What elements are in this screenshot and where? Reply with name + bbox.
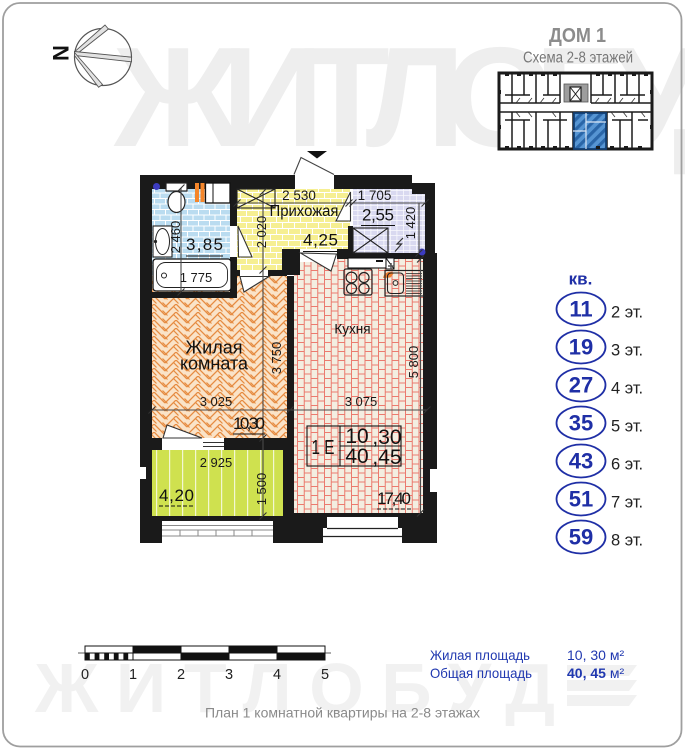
- svg-text:3 075: 3 075: [345, 394, 378, 409]
- svg-text:Прихожая: Прихожая: [270, 203, 339, 220]
- svg-text:11: 11: [569, 297, 592, 322]
- svg-text:17,40: 17,40: [377, 489, 411, 508]
- svg-text:3 750: 3 750: [269, 342, 284, 375]
- svg-text:8 эт.: 8 эт.: [611, 532, 643, 550]
- svg-text:кв.: кв.: [569, 270, 593, 289]
- svg-text:2: 2: [177, 667, 185, 683]
- svg-text:7 эт.: 7 эт.: [611, 494, 643, 512]
- svg-text:N: N: [49, 45, 74, 61]
- svg-text:1 775: 1 775: [180, 270, 213, 285]
- svg-text:5 800: 5 800: [406, 346, 421, 379]
- svg-text:,45: ,45: [372, 446, 401, 469]
- svg-text:1: 1: [129, 667, 137, 683]
- svg-text:51: 51: [569, 487, 593, 512]
- svg-text:0: 0: [81, 667, 89, 683]
- svg-text:4: 4: [273, 667, 281, 683]
- svg-text:ДОМ 1: ДОМ 1: [549, 24, 606, 47]
- svg-text:2 020: 2 020: [254, 216, 269, 249]
- svg-text:Общая площадь: Общая площадь: [430, 665, 532, 681]
- svg-text:4,25: 4,25: [303, 231, 338, 250]
- svg-text:10,30: 10,30: [233, 414, 265, 433]
- svg-text:10, 30 м²: 10, 30 м²: [567, 647, 624, 663]
- svg-text:4 эт.: 4 эт.: [611, 380, 643, 398]
- svg-text:2,55: 2,55: [362, 206, 394, 225]
- svg-text:43: 43: [569, 449, 593, 474]
- svg-text:5 эт.: 5 эт.: [611, 418, 643, 436]
- svg-text:19: 19: [569, 335, 593, 360]
- svg-text:1 420: 1 420: [403, 207, 418, 240]
- svg-text:2 460: 2 460: [168, 221, 183, 254]
- svg-text:Схема 2-8 этажей: Схема 2-8 этажей: [523, 50, 633, 67]
- svg-text:40: 40: [345, 445, 368, 468]
- svg-text:2 эт.: 2 эт.: [611, 304, 643, 322]
- svg-text:5: 5: [321, 667, 329, 683]
- svg-text:1 500: 1 500: [254, 473, 269, 506]
- svg-text:1 Е: 1 Е: [312, 437, 335, 459]
- svg-text:Жилая площадь: Жилая площадь: [430, 647, 530, 663]
- svg-text:План 1 комнатной квартиры на 2: План 1 комнатной квартиры на 2-8 этажах: [205, 705, 480, 721]
- svg-text:3 эт.: 3 эт.: [611, 342, 643, 360]
- svg-text:27: 27: [569, 373, 593, 398]
- svg-text:3: 3: [225, 667, 233, 683]
- svg-text:4,20: 4,20: [159, 486, 194, 505]
- svg-text:35: 35: [569, 411, 593, 436]
- svg-text:1 705: 1 705: [358, 188, 392, 203]
- svg-text:6 эт.: 6 эт.: [611, 456, 643, 474]
- svg-text:2 530: 2 530: [282, 188, 316, 203]
- svg-text:3 025: 3 025: [200, 394, 233, 409]
- svg-text:40, 45 м²: 40, 45 м²: [567, 665, 624, 681]
- svg-text:2 925: 2 925: [200, 455, 233, 470]
- svg-text:комната: комната: [180, 354, 249, 374]
- svg-text:Кухня: Кухня: [334, 322, 370, 337]
- svg-text:59: 59: [569, 525, 593, 550]
- svg-text:3,85: 3,85: [186, 235, 223, 254]
